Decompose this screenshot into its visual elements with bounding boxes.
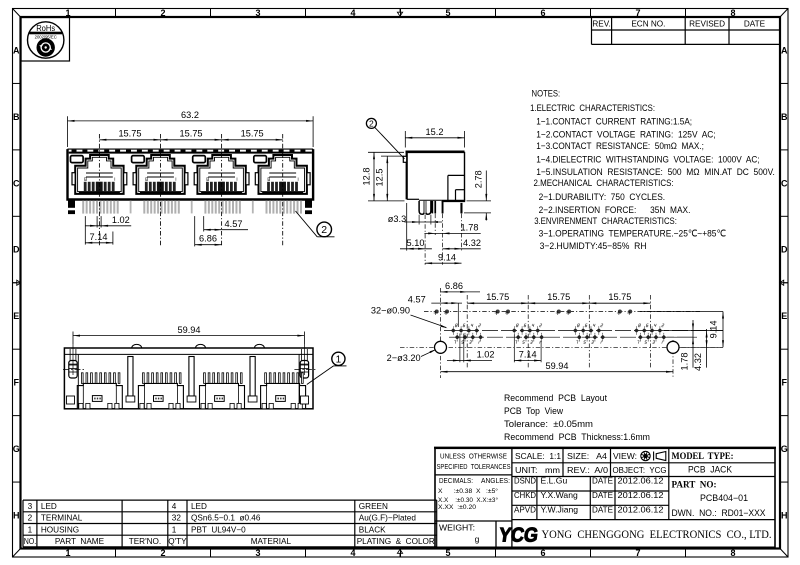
svg-text:9.14: 9.14 bbox=[438, 252, 456, 262]
svg-text:QSn6.5−0.1 ø0.46: QSn6.5−0.1 ø0.46 bbox=[191, 514, 261, 523]
svg-text:1.78: 1.78 bbox=[461, 223, 479, 233]
svg-text:H: H bbox=[13, 510, 20, 520]
svg-text:8: 8 bbox=[730, 548, 735, 558]
svg-text:4.57: 4.57 bbox=[408, 295, 426, 305]
svg-text:ANGLES:: ANGLES: bbox=[481, 478, 510, 485]
svg-text:Au(G.F)−Plated: Au(G.F)−Plated bbox=[359, 514, 417, 523]
svg-text:3−1.OPERATING TEMPERATURE.−25: 3−1.OPERATING TEMPERATURE.−25℃~+85℃ bbox=[539, 229, 726, 239]
svg-text:HOUSING: HOUSING bbox=[41, 525, 79, 534]
svg-text:63.2: 63.2 bbox=[181, 110, 199, 120]
svg-text:1.02: 1.02 bbox=[112, 215, 130, 225]
svg-text:1: 1 bbox=[172, 525, 177, 534]
svg-text:PBT UL94V−0: PBT UL94V−0 bbox=[191, 525, 246, 534]
svg-text:WEIGHT:: WEIGHT: bbox=[439, 524, 475, 533]
svg-text:2.MECHANICAL CHARACTERISTICS:: 2.MECHANICAL CHARACTERISTICS: bbox=[534, 178, 674, 188]
svg-text:4.32: 4.32 bbox=[693, 353, 703, 371]
svg-text:PCB JACK: PCB JACK bbox=[688, 465, 732, 475]
svg-text:12.8: 12.8 bbox=[361, 168, 371, 186]
svg-text:2−2.INSERTION FORCE: 35N: 2−2.INSERTION FORCE: 35N MAX. bbox=[539, 205, 691, 215]
svg-text:1: 1 bbox=[65, 8, 70, 18]
svg-text:DECIMALS:: DECIMALS: bbox=[439, 478, 473, 485]
svg-text:YONG CHENGGONG ELECTRONICS: YONG CHENGGONG ELECTRONICS CO., LTD. bbox=[542, 529, 772, 541]
svg-text:2−1.DURABILITY: 750 CYCLES.: 2−1.DURABILITY: 750 CYCLES. bbox=[539, 192, 666, 202]
svg-text:ø3.3: ø3.3 bbox=[388, 214, 406, 224]
svg-text:59.94: 59.94 bbox=[178, 325, 201, 335]
svg-text:F: F bbox=[781, 378, 787, 388]
svg-text:UNLESS OTHERWISE: UNLESS OTHERWISE bbox=[440, 453, 507, 460]
svg-text:TER'NO.: TER'NO. bbox=[129, 537, 162, 546]
svg-text:2−ø3.20: 2−ø3.20 bbox=[387, 353, 421, 363]
svg-text:LED: LED bbox=[41, 502, 57, 511]
svg-text:12.5: 12.5 bbox=[375, 169, 385, 187]
svg-text:UNIT: mm: UNIT: mm bbox=[515, 465, 560, 475]
svg-text:2012.06.12: 2012.06.12 bbox=[618, 476, 664, 486]
svg-text:OBJECT: YCG: OBJECT: YCG bbox=[613, 465, 667, 475]
svg-text:RoHs: RoHs bbox=[36, 24, 55, 33]
svg-text:6.86: 6.86 bbox=[445, 281, 463, 291]
svg-text:D: D bbox=[781, 245, 788, 255]
svg-text:15.2: 15.2 bbox=[426, 127, 444, 137]
svg-text:E: E bbox=[781, 311, 787, 321]
svg-text:15.75: 15.75 bbox=[118, 129, 141, 139]
svg-text:B: B bbox=[13, 112, 20, 122]
svg-text:MATERIAL: MATERIAL bbox=[251, 537, 292, 546]
svg-text:X.XX :±0.20: X.XX :±0.20 bbox=[438, 504, 476, 511]
svg-text:Tolerance: ±0.05mm: Tolerance: ±0.05mm bbox=[504, 419, 593, 429]
svg-text:2012.06.12: 2012.06.12 bbox=[618, 490, 664, 500]
svg-text:7: 7 bbox=[635, 8, 640, 18]
svg-text:1−3.CONTACT RESISTANCE: 50mΩ: 1−3.CONTACT RESISTANCE: 50mΩ MAX.; bbox=[536, 141, 704, 151]
svg-text:G: G bbox=[13, 444, 20, 454]
svg-text:X :±0.38 X :±5°: X :±0.38 X :±5° bbox=[438, 487, 498, 495]
svg-text:PLATING & COLOR: PLATING & COLOR bbox=[357, 537, 435, 546]
svg-text:g: g bbox=[475, 534, 480, 544]
svg-text:2: 2 bbox=[321, 224, 327, 236]
svg-text:1.02: 1.02 bbox=[477, 350, 495, 360]
svg-text:SCALE: 1:1: SCALE: 1:1 bbox=[515, 451, 561, 461]
svg-text:B: B bbox=[781, 112, 788, 122]
svg-text:1−4.DIELECTRIC WITHSTANDING: 1−4.DIELECTRIC WITHSTANDING VOLTAGE: 100… bbox=[536, 154, 759, 164]
svg-text:G: G bbox=[781, 444, 788, 454]
svg-text:APVD: APVD bbox=[514, 505, 536, 515]
svg-text:15.75: 15.75 bbox=[241, 129, 264, 139]
svg-text:2: 2 bbox=[160, 548, 165, 558]
svg-text:5.10: 5.10 bbox=[407, 238, 425, 248]
svg-text:DATE: DATE bbox=[592, 476, 613, 486]
svg-text:DWN. NO.: RD01−XXX: DWN. NO.: RD01−XXX bbox=[672, 508, 766, 518]
svg-text:D: D bbox=[13, 245, 20, 255]
svg-text:REV.: A/0: REV.: A/0 bbox=[567, 465, 608, 475]
svg-text:Q'TY: Q'TY bbox=[168, 537, 187, 546]
svg-text:ECN NO.: ECN NO. bbox=[631, 20, 665, 29]
svg-text:A: A bbox=[781, 45, 788, 55]
svg-text:DATE: DATE bbox=[592, 490, 613, 500]
svg-text:2012.06.12: 2012.06.12 bbox=[618, 505, 664, 515]
svg-text:8: 8 bbox=[730, 8, 735, 18]
svg-text:6.86: 6.86 bbox=[199, 234, 217, 244]
svg-text:MODEL TYPE:: MODEL TYPE: bbox=[672, 451, 734, 461]
svg-text:1−5.INSULATION RESISTANCE: 5: 1−5.INSULATION RESISTANCE: 500 MΩ MIN.AT… bbox=[536, 167, 775, 177]
svg-text:9.14: 9.14 bbox=[709, 320, 719, 338]
svg-text:REVISED: REVISED bbox=[689, 20, 725, 29]
svg-text:15.75: 15.75 bbox=[608, 292, 631, 302]
svg-text:2: 2 bbox=[369, 119, 374, 129]
svg-text:4: 4 bbox=[350, 8, 355, 18]
svg-text:H: H bbox=[781, 510, 788, 520]
svg-text:2: 2 bbox=[28, 514, 33, 523]
svg-text:SIZE: A4: SIZE: A4 bbox=[567, 451, 607, 461]
svg-text:4.32: 4.32 bbox=[463, 238, 481, 248]
svg-text:F: F bbox=[14, 378, 20, 388]
svg-text:C: C bbox=[13, 178, 20, 188]
svg-text:1: 1 bbox=[65, 548, 70, 558]
svg-text:3: 3 bbox=[255, 548, 260, 558]
svg-text:E.L.Gu: E.L.Gu bbox=[541, 476, 568, 486]
svg-text:NO.: NO. bbox=[24, 537, 37, 546]
svg-text:2.78: 2.78 bbox=[473, 170, 483, 188]
svg-text:7: 7 bbox=[635, 548, 640, 558]
svg-text:GREEN: GREEN bbox=[359, 502, 388, 511]
svg-text:PCB404−01: PCB404−01 bbox=[700, 493, 748, 503]
svg-text:3−2.HUMIDTY:45−85% RH: 3−2.HUMIDTY:45−85% RH bbox=[540, 241, 647, 251]
svg-text:Y.X.Wang: Y.X.Wang bbox=[541, 490, 578, 500]
svg-text:5: 5 bbox=[445, 548, 450, 558]
svg-text:YCG: YCG bbox=[497, 525, 539, 547]
svg-text:3: 3 bbox=[255, 8, 260, 18]
svg-text:7.14: 7.14 bbox=[519, 350, 537, 360]
svg-text:1.ELECTRIC CHARACTERISTICS:: 1.ELECTRIC CHARACTERISTICS: bbox=[530, 103, 655, 113]
svg-text:4.57: 4.57 bbox=[225, 219, 243, 229]
svg-text:X.X :±0.30 X.X:±3°: X.X :±0.30 X.X:±3° bbox=[438, 496, 498, 504]
svg-text:15.75: 15.75 bbox=[180, 129, 203, 139]
svg-text:C: C bbox=[781, 178, 788, 188]
svg-text:E: E bbox=[13, 311, 19, 321]
svg-text:PART NO:: PART NO: bbox=[672, 479, 717, 489]
svg-text:A: A bbox=[13, 45, 20, 55]
svg-text:DSND: DSND bbox=[514, 476, 536, 486]
svg-text:Y.W.Jiang: Y.W.Jiang bbox=[541, 505, 579, 515]
svg-text:CHKD: CHKD bbox=[514, 490, 536, 500]
svg-text:6: 6 bbox=[540, 8, 545, 18]
svg-text:5: 5 bbox=[445, 8, 450, 18]
svg-text:1−2.CONTACT VOLTAGE RATING:: 1−2.CONTACT VOLTAGE RATING: 125V AC; bbox=[536, 130, 716, 140]
svg-text:PCB Top View: PCB Top View bbox=[504, 406, 563, 416]
svg-text:32−ø0.90: 32−ø0.90 bbox=[371, 306, 410, 316]
svg-text:4: 4 bbox=[350, 548, 355, 558]
svg-text:Recommend PCB Layout: Recommend PCB Layout bbox=[504, 393, 607, 403]
svg-text:1: 1 bbox=[28, 525, 33, 534]
svg-text:Recommend PCB Thickness:1.6m: Recommend PCB Thickness:1.6mm bbox=[504, 432, 650, 442]
svg-text:6: 6 bbox=[540, 548, 545, 558]
svg-text:NOTES:: NOTES: bbox=[532, 89, 561, 99]
svg-text:4: 4 bbox=[172, 502, 177, 511]
svg-text:3: 3 bbox=[28, 502, 33, 511]
svg-text:DATE: DATE bbox=[592, 505, 613, 515]
svg-text:TERMINAL: TERMINAL bbox=[41, 514, 83, 523]
svg-text:59.94: 59.94 bbox=[546, 361, 569, 371]
svg-text:1−1.CONTACT CURRENT RATING:1: 1−1.CONTACT CURRENT RATING:1.5A; bbox=[536, 116, 692, 126]
svg-text:15.75: 15.75 bbox=[486, 292, 509, 302]
svg-text:PART NAME: PART NAME bbox=[55, 537, 105, 546]
svg-text:3.ENVIRENMENT CHARACTERISTICS: 3.ENVIRENMENT CHARACTERISTICS: bbox=[534, 216, 677, 226]
svg-text:7.14: 7.14 bbox=[90, 232, 108, 242]
svg-text:BLACK: BLACK bbox=[359, 525, 386, 534]
svg-text:LED: LED bbox=[191, 502, 207, 511]
svg-text:REV.: REV. bbox=[592, 20, 610, 29]
svg-text:1: 1 bbox=[336, 354, 342, 365]
svg-text:VIEW:: VIEW: bbox=[613, 451, 637, 461]
svg-text:1.78: 1.78 bbox=[680, 353, 690, 371]
svg-text:15.75: 15.75 bbox=[547, 292, 570, 302]
svg-text:SPECIFIED TOLERANCES: SPECIFIED TOLERANCES bbox=[437, 464, 511, 471]
svg-text:2: 2 bbox=[160, 8, 165, 18]
svg-text:32: 32 bbox=[172, 514, 182, 523]
svg-text:DATE: DATE bbox=[744, 20, 766, 29]
